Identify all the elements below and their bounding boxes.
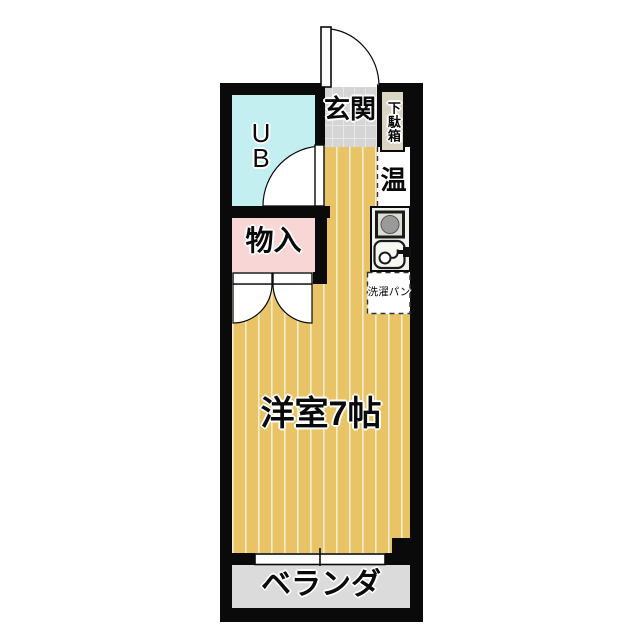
entrance-door-leaf — [321, 27, 331, 87]
kitchenette-icon — [371, 207, 411, 271]
wall-ub-storage-divider — [220, 206, 330, 218]
kitchenette-knob-stem — [398, 250, 403, 254]
storage-door-right-leaf — [273, 273, 312, 284]
storage-door-left-leaf — [233, 273, 272, 284]
floor-plan-drawing — [0, 0, 640, 640]
kitchenette-burner-circle — [381, 216, 399, 234]
storage-label: 物入 — [232, 226, 315, 255]
wall-storage-bottom-stub — [313, 272, 327, 284]
hall-wood-floor — [324, 147, 377, 287]
floor-plan: 玄関 下駄箱 U B 物入 温 洗濯パン 洋室7帖 ベランダ — [0, 0, 640, 640]
main-room-label: 洋室7帖 — [232, 397, 410, 433]
balcony-label: ベランダ — [232, 569, 410, 601]
kitchenette-drain-circle — [380, 253, 391, 264]
kitchenette-knob — [403, 247, 411, 257]
unit-bath-label-line2: B — [238, 146, 284, 171]
shoe-cabinet-label: 下駄箱 — [381, 94, 405, 150]
entrance-door-icon — [321, 27, 379, 87]
wall-top-left — [220, 83, 322, 95]
unit-bath-door-leaf — [315, 145, 324, 206]
water-heater-label: 温 — [377, 167, 410, 194]
unit-bath-label: U B — [238, 121, 284, 171]
laundry-pan-label: 洗濯パン — [366, 287, 412, 298]
wall-bottom-right-notch — [392, 538, 410, 565]
wall-left — [220, 83, 232, 622]
entrance-door-swing-arc — [331, 29, 379, 86]
wall-bottom — [220, 608, 423, 622]
wall-right — [410, 95, 423, 622]
wall-window-left-stub — [232, 553, 255, 565]
entrance-label: 玄関 — [322, 96, 378, 123]
